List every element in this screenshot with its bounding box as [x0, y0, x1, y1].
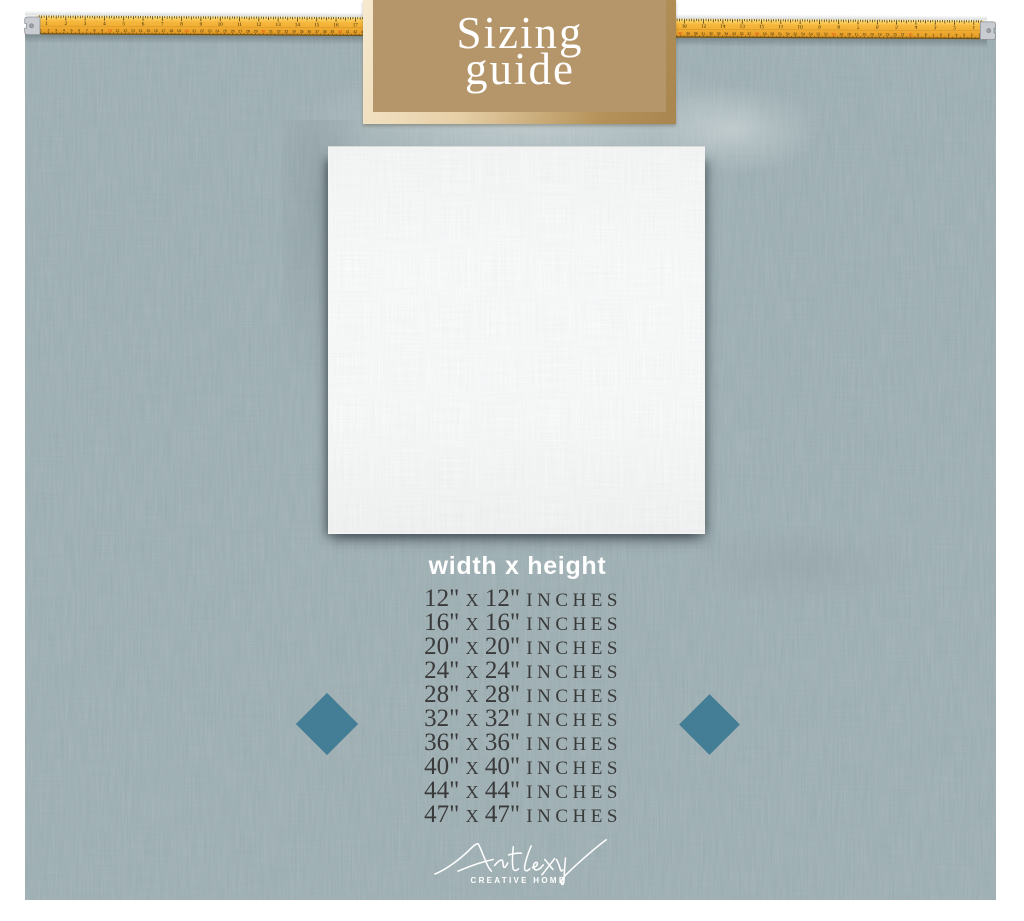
svg-text:20: 20 [185, 29, 189, 33]
svg-text:25: 25 [223, 29, 227, 33]
svg-text:5: 5 [71, 28, 73, 32]
svg-text:2: 2 [953, 24, 956, 30]
svg-text:4: 4 [63, 28, 65, 32]
svg-text:5: 5 [948, 33, 950, 37]
svg-text:17: 17 [353, 22, 359, 28]
svg-text:8: 8 [180, 22, 183, 28]
svg-text:7: 7 [857, 23, 860, 29]
svg-text:13: 13 [740, 23, 746, 29]
svg-text:12: 12 [256, 22, 262, 28]
svg-text:8: 8 [837, 23, 840, 29]
svg-text:2: 2 [64, 21, 67, 27]
svg-text:26: 26 [231, 29, 235, 33]
svg-text:1: 1 [45, 21, 48, 27]
svg-text:14: 14 [878, 32, 882, 36]
svg-text:11: 11 [778, 23, 783, 29]
svg-text:8: 8 [94, 29, 96, 33]
svg-text:40: 40 [678, 31, 682, 35]
svg-text:3: 3 [963, 33, 965, 37]
svg-text:34: 34 [724, 31, 728, 35]
svg-text:17: 17 [855, 32, 859, 36]
svg-text:16: 16 [154, 29, 158, 33]
svg-text:22: 22 [816, 32, 820, 36]
svg-text:8: 8 [925, 32, 927, 36]
svg-text:11: 11 [116, 29, 120, 33]
svg-text:6: 6 [142, 21, 145, 27]
svg-text:35: 35 [717, 31, 721, 35]
svg-text:39: 39 [686, 31, 690, 35]
svg-text:16: 16 [862, 32, 866, 36]
svg-text:4: 4 [915, 24, 918, 30]
svg-text:15: 15 [870, 32, 874, 36]
svg-text:12: 12 [123, 29, 127, 33]
svg-text:15: 15 [314, 22, 320, 28]
svg-text:15: 15 [146, 29, 150, 33]
svg-text:31: 31 [747, 32, 751, 36]
svg-text:36: 36 [307, 30, 311, 34]
svg-text:27: 27 [238, 29, 242, 33]
svg-text:41: 41 [346, 30, 350, 34]
svg-text:9: 9 [818, 23, 821, 29]
svg-text:33: 33 [284, 30, 288, 34]
svg-text:36: 36 [709, 31, 713, 35]
svg-text:42: 42 [353, 30, 357, 34]
svg-text:13: 13 [275, 22, 281, 28]
svg-text:37: 37 [701, 31, 705, 35]
svg-text:29: 29 [763, 32, 767, 36]
svg-text:34: 34 [292, 30, 296, 34]
svg-text:15: 15 [701, 23, 707, 29]
svg-text:6: 6 [876, 23, 879, 29]
svg-text:23: 23 [809, 32, 813, 36]
svg-text:18: 18 [169, 29, 173, 33]
svg-text:11: 11 [901, 32, 905, 36]
svg-text:29: 29 [254, 29, 258, 33]
svg-text:12: 12 [759, 23, 765, 29]
svg-text:30: 30 [261, 29, 265, 33]
svg-text:10: 10 [218, 22, 224, 28]
svg-text:3: 3 [934, 24, 937, 30]
svg-text:13: 13 [885, 32, 889, 36]
svg-text:35: 35 [300, 30, 304, 34]
svg-text:14: 14 [295, 22, 301, 28]
svg-text:33: 33 [732, 31, 736, 35]
svg-text:5: 5 [895, 24, 898, 30]
svg-text:21: 21 [192, 29, 196, 33]
svg-text:9: 9 [200, 22, 203, 28]
svg-text:39: 39 [330, 30, 334, 34]
svg-text:19: 19 [839, 32, 843, 36]
svg-text:7: 7 [932, 32, 934, 36]
svg-text:24: 24 [215, 29, 219, 33]
svg-text:30: 30 [755, 32, 759, 36]
svg-text:32: 32 [277, 30, 281, 34]
svg-text:4: 4 [955, 33, 957, 37]
svg-text:40: 40 [338, 30, 342, 34]
svg-text:3: 3 [84, 21, 87, 27]
svg-text:28: 28 [246, 29, 250, 33]
svg-text:18: 18 [847, 32, 851, 36]
svg-text:1: 1 [972, 24, 975, 30]
svg-text:16: 16 [333, 22, 339, 28]
svg-text:32: 32 [740, 31, 744, 35]
svg-text:4: 4 [103, 21, 106, 27]
svg-text:10: 10 [797, 23, 803, 29]
svg-text:22: 22 [200, 29, 204, 33]
svg-text:9: 9 [917, 32, 919, 36]
svg-text:2: 2 [48, 28, 50, 32]
svg-text:9: 9 [101, 29, 103, 33]
svg-text:7: 7 [161, 21, 164, 27]
svg-text:38: 38 [323, 30, 327, 34]
svg-text:28: 28 [770, 32, 774, 36]
svg-text:2: 2 [971, 33, 973, 37]
svg-text:17: 17 [162, 29, 166, 33]
svg-text:14: 14 [139, 29, 143, 33]
svg-text:10: 10 [908, 32, 912, 36]
svg-text:23: 23 [208, 29, 212, 33]
svg-text:25: 25 [793, 32, 797, 36]
svg-text:13: 13 [131, 29, 135, 33]
svg-text:7: 7 [86, 29, 88, 33]
svg-text:6: 6 [940, 32, 942, 36]
svg-text:38: 38 [694, 31, 698, 35]
svg-text:19: 19 [177, 29, 181, 33]
svg-text:24: 24 [801, 32, 805, 36]
svg-text:27: 27 [778, 32, 782, 36]
svg-text:3: 3 [55, 28, 57, 32]
svg-text:21: 21 [824, 32, 828, 36]
svg-text:14: 14 [720, 23, 726, 29]
svg-text:31: 31 [269, 29, 273, 33]
svg-text:5: 5 [122, 21, 125, 27]
svg-text:16: 16 [682, 22, 688, 28]
svg-text:6: 6 [78, 29, 80, 33]
svg-text:37: 37 [315, 30, 319, 34]
svg-text:26: 26 [786, 32, 790, 36]
svg-text:10: 10 [108, 29, 112, 33]
svg-text:12: 12 [893, 32, 897, 36]
svg-text:20: 20 [832, 32, 836, 36]
svg-text:11: 11 [237, 22, 242, 28]
